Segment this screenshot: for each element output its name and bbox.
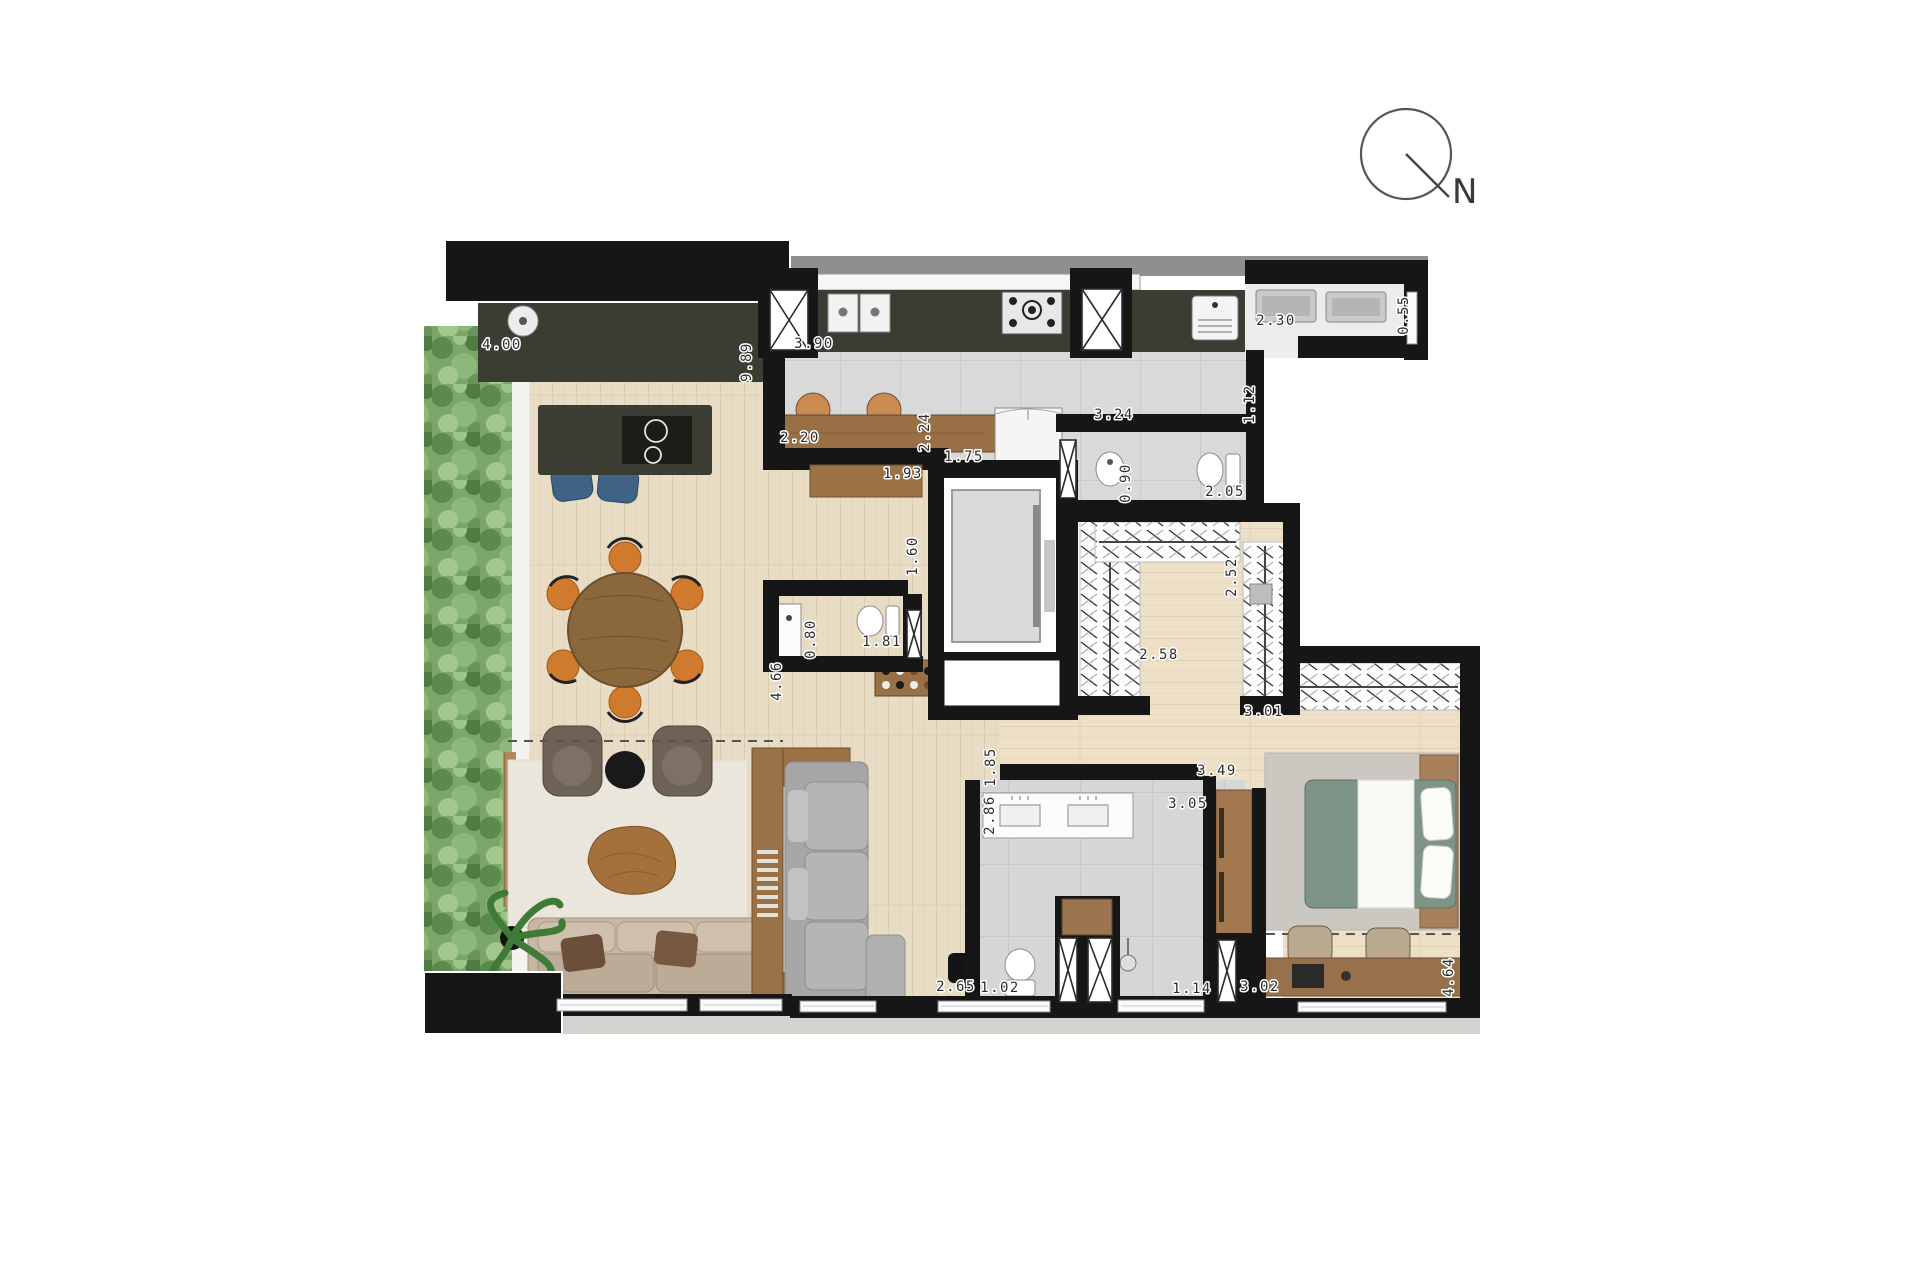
washing-machine bbox=[1192, 296, 1238, 340]
throw-pillow bbox=[560, 933, 606, 973]
dimension-label: 2.86 bbox=[982, 795, 998, 835]
wall bbox=[1055, 503, 1300, 522]
pouf bbox=[605, 751, 645, 789]
burner bbox=[1028, 306, 1036, 314]
elevator-landing bbox=[944, 660, 1060, 706]
dimension-label: 3.90 bbox=[794, 336, 834, 352]
north-label: N bbox=[1452, 172, 1477, 212]
pillow bbox=[1420, 845, 1454, 899]
hedge-strip bbox=[424, 326, 512, 1015]
burner bbox=[1009, 319, 1017, 327]
dimension-label: 9.89 bbox=[739, 342, 755, 382]
armchair-seat bbox=[662, 746, 702, 786]
armchair bbox=[543, 726, 602, 796]
dimension-label: 4.00 bbox=[482, 337, 522, 353]
wardrobe-handle bbox=[1219, 808, 1224, 858]
dimension-label: 0.80 bbox=[803, 619, 819, 659]
dimension-label: 2.24 bbox=[917, 412, 933, 452]
dimension-label: 2.52 bbox=[1224, 557, 1240, 597]
floor-plan-drawing: N bbox=[0, 0, 1920, 1280]
dimension-label: 2.58 bbox=[1139, 647, 1179, 663]
elevator-panel bbox=[1044, 540, 1055, 612]
toilet-tank bbox=[886, 606, 899, 636]
sectional-cushion bbox=[805, 852, 868, 920]
dining-chair bbox=[609, 686, 641, 718]
wardrobe-handle bbox=[1219, 872, 1224, 922]
fridge bbox=[995, 408, 1062, 467]
elevator-cab bbox=[952, 490, 1040, 642]
dimension-label: 3.24 bbox=[1094, 407, 1134, 423]
wall bbox=[1246, 350, 1264, 518]
dimension-label: 4.64 bbox=[1441, 957, 1457, 997]
dimension-label: 3.05 bbox=[1168, 796, 1208, 812]
sink-faucet bbox=[1107, 459, 1113, 465]
lavabo-faucet bbox=[786, 615, 792, 621]
vanity-sink bbox=[1068, 805, 1108, 826]
wall bbox=[763, 656, 923, 672]
wall bbox=[763, 580, 779, 672]
toilet-bowl bbox=[1197, 453, 1223, 487]
armchair bbox=[653, 726, 712, 796]
dimension-label: 3.02 bbox=[1240, 979, 1280, 995]
elevator-door bbox=[1033, 505, 1040, 627]
living-room bbox=[490, 726, 788, 1008]
dimension-label: 1.81 bbox=[862, 634, 902, 650]
wall bbox=[1055, 696, 1150, 715]
dimension-label: 3.49 bbox=[1197, 763, 1237, 779]
dimension-label: 1.02 bbox=[980, 980, 1020, 996]
dimension-label: 0.90 bbox=[1118, 463, 1134, 503]
floor-plan-page: N bbox=[0, 0, 1920, 1280]
dimension-label: 1.12 bbox=[1242, 384, 1258, 424]
dimension-label: 2.20 bbox=[780, 430, 820, 446]
wall bbox=[763, 580, 908, 596]
throw-pillow bbox=[653, 930, 698, 968]
shower-head bbox=[1120, 955, 1136, 971]
sectional-cushion bbox=[805, 922, 868, 990]
round-sink-drain bbox=[519, 317, 527, 325]
pillow bbox=[1420, 787, 1454, 841]
laptop bbox=[1292, 964, 1324, 988]
burner bbox=[1047, 319, 1055, 327]
gas-cooktop bbox=[1002, 292, 1062, 334]
wall bbox=[1056, 414, 1250, 432]
dimension-label: 2.65 bbox=[936, 979, 976, 995]
sectional-cushion bbox=[805, 782, 868, 850]
dimension-label: 3.01 bbox=[1244, 704, 1284, 720]
closet-safe bbox=[1250, 584, 1272, 604]
dimension-label: 0.55 bbox=[1396, 295, 1412, 335]
toilet-bowl bbox=[857, 606, 883, 636]
dimension-label: 4.66 bbox=[769, 661, 785, 701]
desk bbox=[1250, 958, 1463, 996]
wall bbox=[1245, 260, 1428, 284]
partition-niche bbox=[1062, 899, 1112, 935]
sectional-pillow bbox=[788, 790, 808, 842]
bed-sheet-band bbox=[1358, 780, 1414, 908]
elevator bbox=[944, 478, 1060, 706]
wall bbox=[1283, 646, 1480, 663]
toilet-tank bbox=[1226, 454, 1240, 486]
coffee-table bbox=[588, 826, 676, 894]
wall bbox=[1000, 764, 1205, 780]
dimension-label: 2.05 bbox=[1205, 484, 1245, 500]
burner bbox=[1047, 297, 1055, 305]
dimension-label: 1.14 bbox=[1172, 981, 1212, 997]
vanity-sink bbox=[1000, 805, 1040, 826]
ac-unit-grille bbox=[1332, 298, 1380, 316]
wall bbox=[1283, 520, 1300, 715]
washer-knob bbox=[1212, 302, 1218, 308]
armchair-seat bbox=[552, 746, 592, 786]
dimension-label: 1.75 bbox=[944, 449, 984, 465]
induction-cooktop bbox=[622, 416, 692, 464]
wall-planter-top bbox=[445, 240, 790, 302]
sink-drain bbox=[839, 308, 848, 317]
wall-bedroom-right bbox=[1460, 646, 1480, 1018]
sink-drain bbox=[871, 308, 880, 317]
dimension-label: 1.60 bbox=[905, 536, 921, 576]
desk-object bbox=[1341, 971, 1351, 981]
sectional-pillow bbox=[788, 868, 808, 920]
lavabo-sink bbox=[777, 604, 801, 658]
console-side bbox=[752, 748, 783, 1000]
dimension-label: 1.85 bbox=[983, 747, 999, 787]
dimension-label: 1.93 bbox=[883, 466, 923, 482]
wall-planter-bottom bbox=[424, 972, 562, 1034]
sectional-chaise bbox=[866, 935, 905, 1005]
burner bbox=[1009, 297, 1017, 305]
toilet-bowl bbox=[1005, 949, 1035, 981]
dining-table bbox=[568, 573, 682, 687]
dimension-label: 2.30 bbox=[1256, 313, 1296, 329]
dining-chair bbox=[609, 542, 641, 574]
